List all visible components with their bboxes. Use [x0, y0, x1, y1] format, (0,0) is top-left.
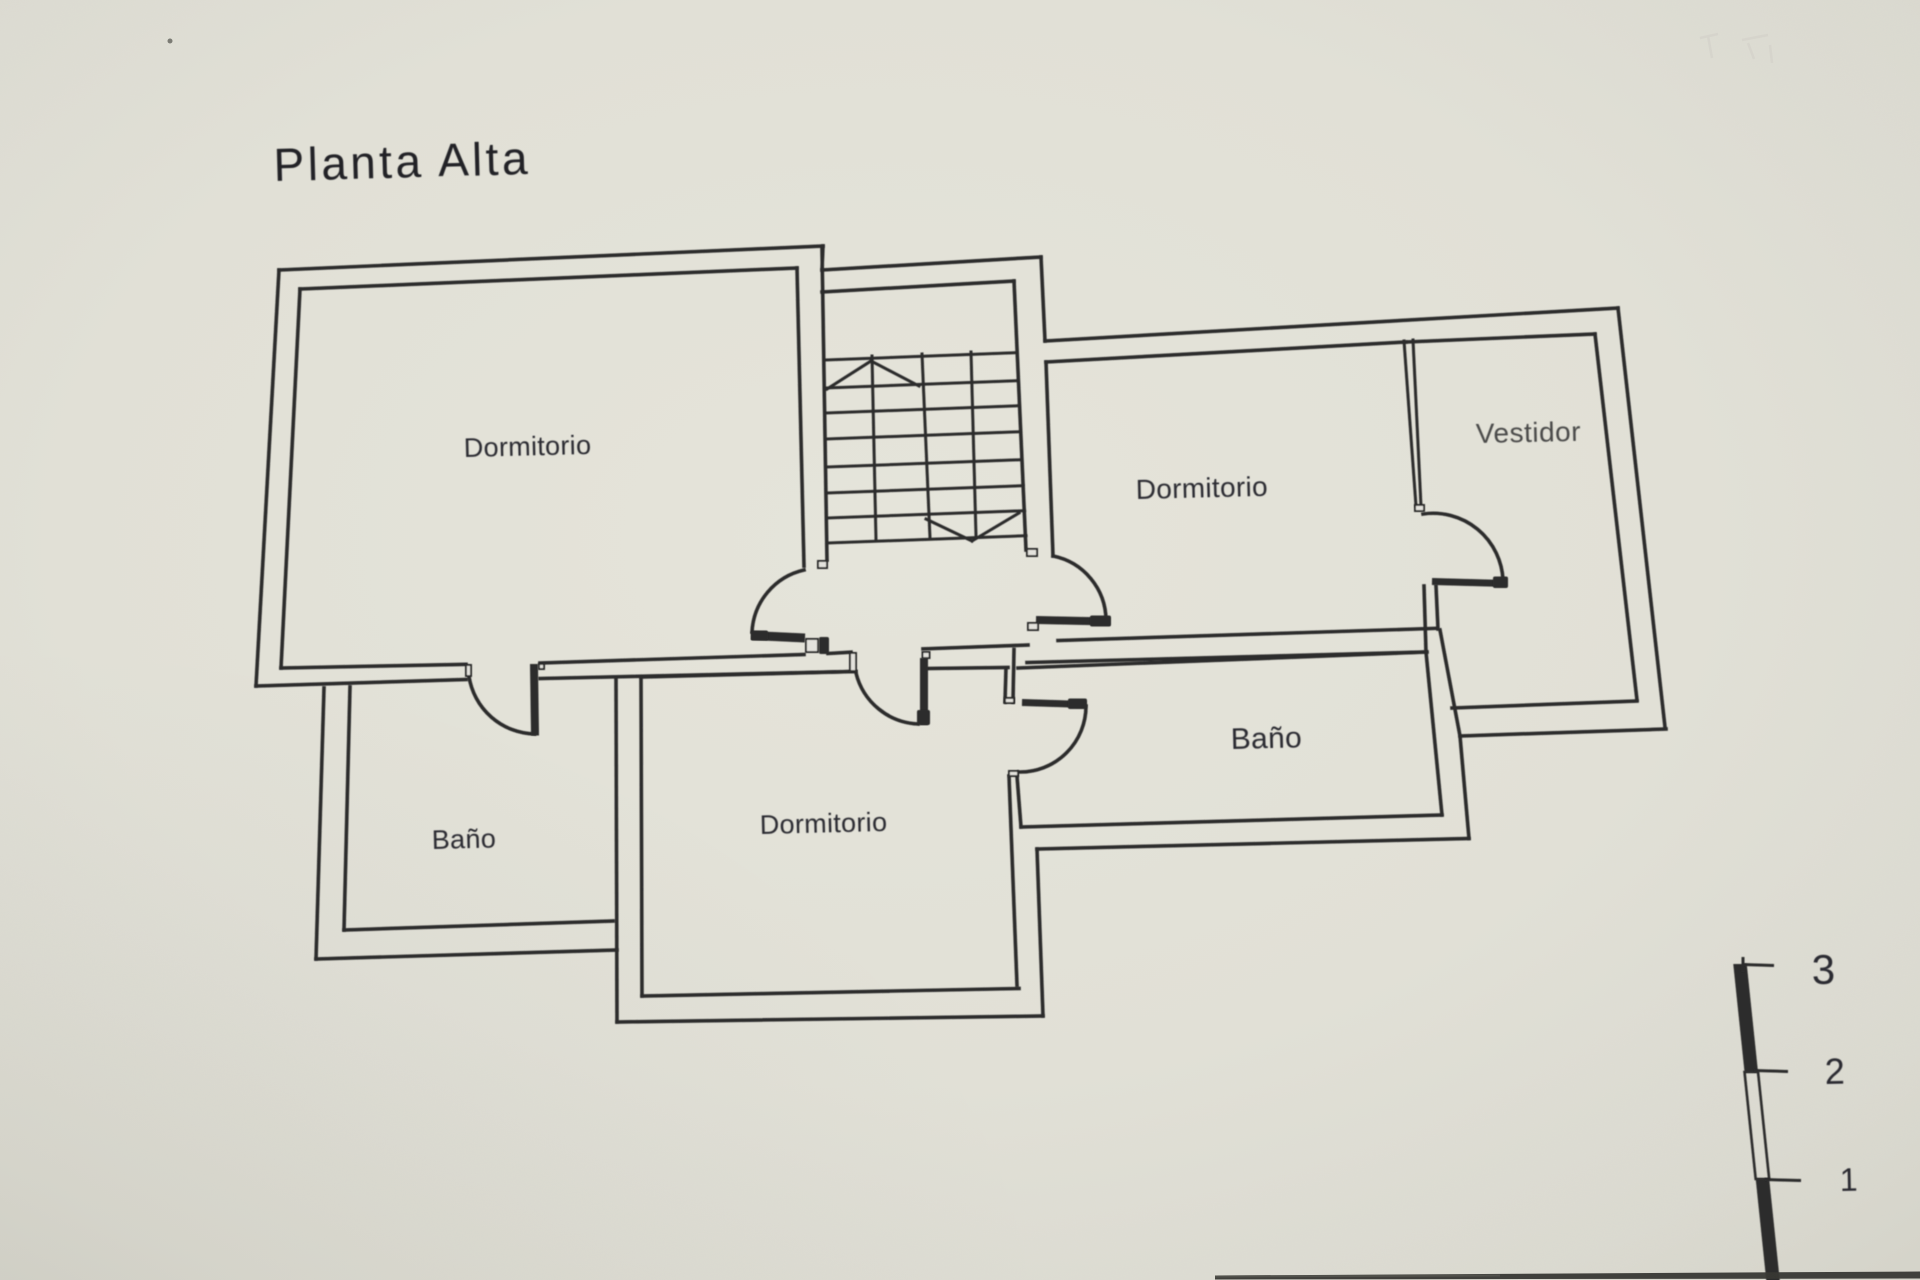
svg-text:Baño: Baño: [1230, 721, 1302, 756]
svg-text:3: 3: [1811, 946, 1836, 993]
svg-text:Vestidor: Vestidor: [1475, 416, 1581, 449]
svg-text:Dormitorio: Dormitorio: [759, 807, 887, 840]
svg-text:Dormitorio: Dormitorio: [463, 430, 591, 463]
svg-text:Planta Alta: Planta Alta: [273, 132, 532, 191]
svg-text:Baño: Baño: [431, 823, 496, 855]
svg-text:Dormitorio: Dormitorio: [1135, 471, 1268, 505]
svg-text:1: 1: [1839, 1162, 1858, 1198]
svg-text:2: 2: [1824, 1051, 1845, 1092]
